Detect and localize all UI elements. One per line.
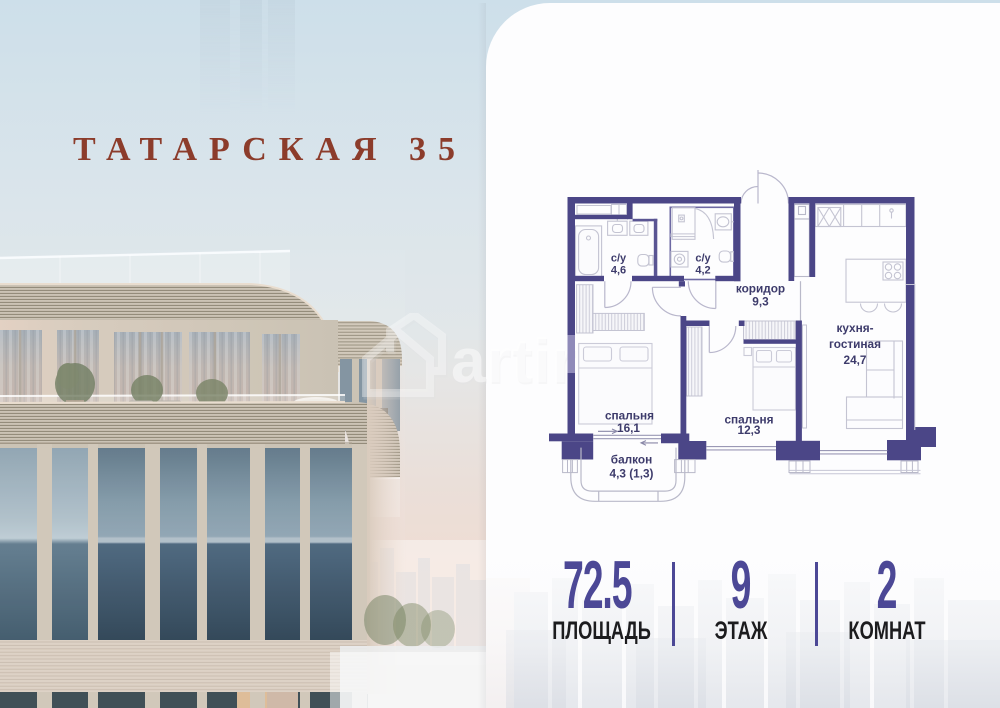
svg-text:12,3: 12,3 <box>738 423 761 437</box>
svg-text:4,3 (1,3): 4,3 (1,3) <box>610 467 654 481</box>
svg-text:с/у: с/у <box>611 253 627 265</box>
svg-text:4,2: 4,2 <box>695 265 710 277</box>
svg-text:4,6: 4,6 <box>611 265 626 277</box>
svg-text:9,3: 9,3 <box>752 295 769 309</box>
svg-text:16,1: 16,1 <box>617 421 640 435</box>
svg-text:коридор: коридор <box>736 282 785 296</box>
svg-text:балкон: балкон <box>611 453 652 467</box>
svg-text:кухня-: кухня- <box>836 321 873 335</box>
svg-text:гостиная: гостиная <box>829 337 881 351</box>
svg-text:с/у: с/у <box>695 253 711 265</box>
svg-text:24,7: 24,7 <box>844 353 867 367</box>
